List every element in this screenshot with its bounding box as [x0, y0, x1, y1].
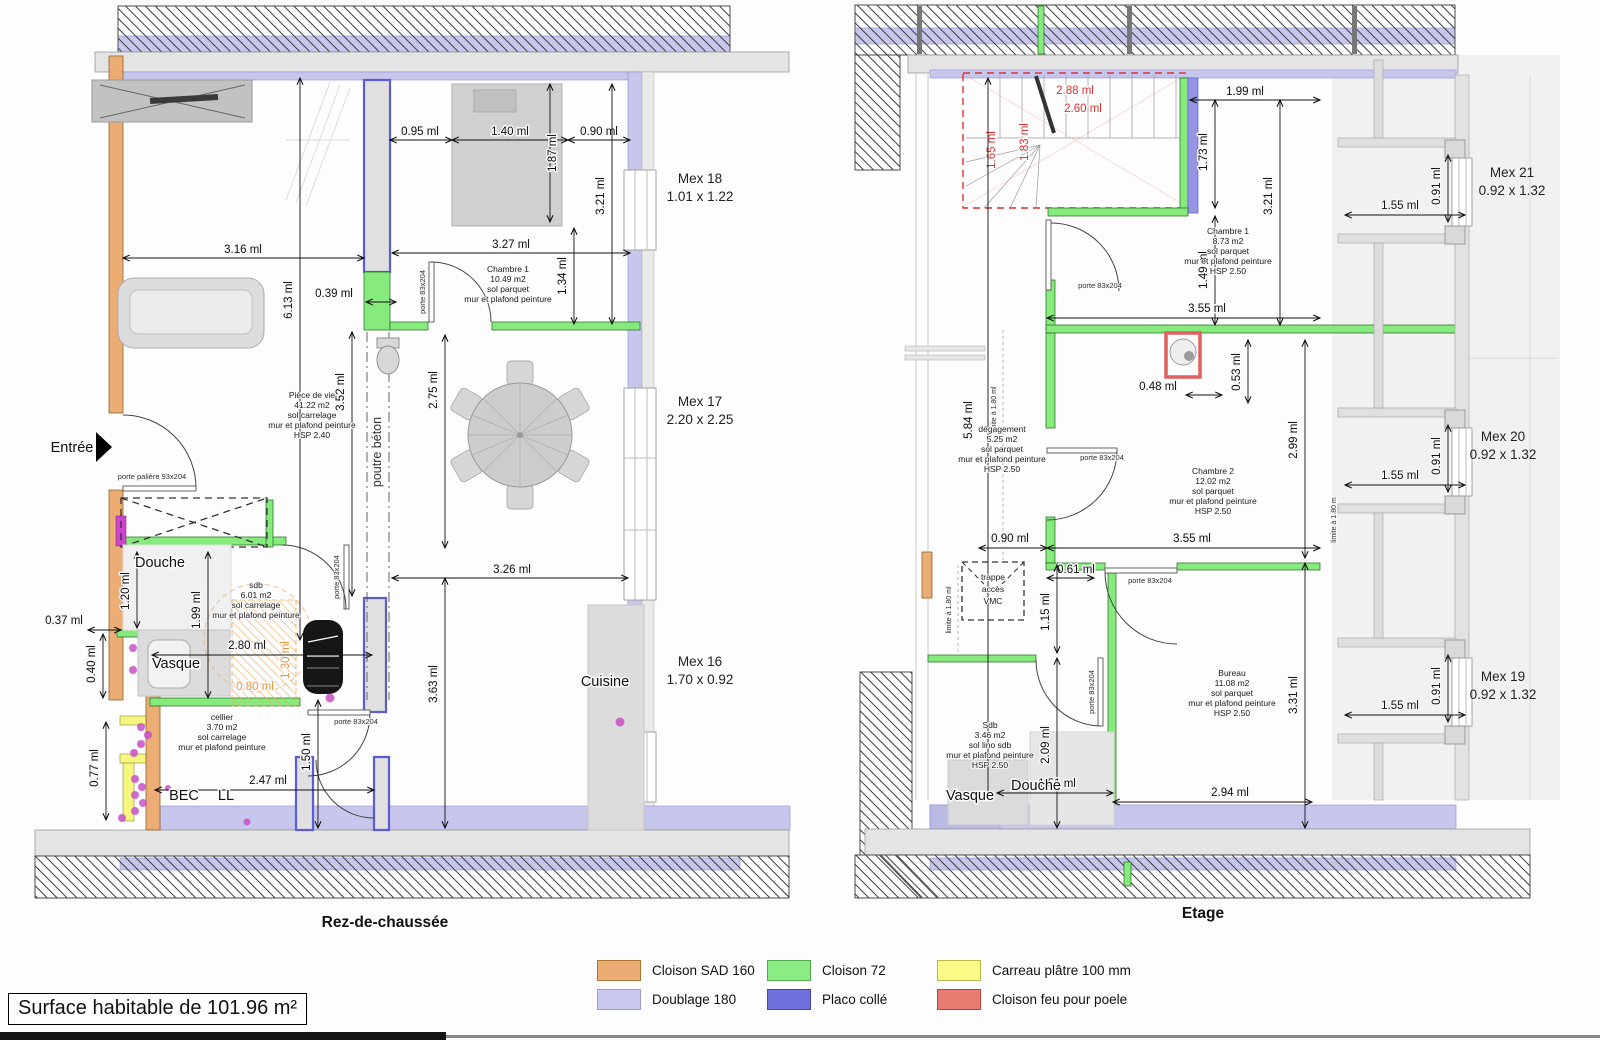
dim-label: 3.55 ml [1173, 533, 1211, 545]
room-label: HSP 2.50 [1195, 506, 1232, 516]
ground-floor-title: Rez-de-chaussée [185, 914, 585, 932]
room-label: sol carrelage [198, 732, 247, 742]
dim-label: 5.84 ml [963, 401, 975, 439]
room-cellier: cellier 3.70 m2 sol carrelage mur et pla… [178, 712, 266, 752]
porte-label: porte 83x204 [1087, 670, 1096, 714]
window-size: 0.92 x 1.32 [1479, 183, 1546, 198]
room-label: sdb [249, 580, 263, 590]
room-chambre2: Chambre 2 12.02 m2 sol parquet mur et pl… [1169, 466, 1257, 516]
mex16-label: Mex 16 1.70 x 0.92 [667, 654, 734, 687]
legend-item: Cloison feu pour poele [937, 989, 1127, 1010]
window-name: Mex 17 [678, 394, 722, 409]
dim-label: 2.09 ml [1040, 726, 1052, 764]
dim-label: 2.99 ml [1288, 421, 1300, 459]
ll-label: LL [218, 788, 234, 804]
room-label: 6.01 m2 [241, 590, 272, 600]
dim-label: 1.73 ml [1198, 133, 1210, 171]
room-label: cellier [211, 712, 233, 722]
bottom-gray-bar [446, 1035, 1600, 1038]
room-label: HSP 2.50 [1210, 266, 1247, 276]
dim-label: 2.47 ml [249, 775, 287, 787]
ghost-stairs [286, 82, 350, 206]
window-name: Mex 21 [1490, 165, 1534, 180]
dim-label: 3.63 ml [428, 665, 440, 703]
room-label: Chambre 1 [487, 264, 529, 274]
douche-label: Douche [135, 555, 185, 571]
dim-label: 0.39 ml [315, 288, 353, 300]
upper-floor-plan: 2.88 ml 2.60 ml 1.65 ml 1.83 ml 1.99 ml … [855, 5, 1560, 898]
dim-label: 2.94 ml [1211, 787, 1249, 799]
room-label: 41.22 m2 [294, 400, 330, 410]
room-label: 12.02 m2 [1195, 476, 1231, 486]
bec-label: BEC [169, 788, 199, 804]
dim-label: 1.15 ml [1040, 593, 1052, 631]
room-label: mur et plafond peinture [1169, 496, 1257, 506]
dim-label: 0.91 ml [1431, 167, 1443, 205]
dim-label: 3.21 ml [595, 177, 607, 215]
room-label: mur et plafond peinture [946, 750, 1034, 760]
entree-label: Entrée [51, 440, 94, 456]
room-label: Chambre 1 [1207, 226, 1249, 236]
room-label: sol carrelage [232, 600, 281, 610]
room-label: HSP 2.50 [984, 464, 1021, 474]
limite-label: limite à 1.80 m [1331, 497, 1338, 543]
room-label: dégagement [978, 424, 1026, 434]
vasque-label: Vasque [946, 788, 994, 804]
dim-label: 0.77 ml [89, 749, 101, 787]
room-label: HSP 2.50 [972, 760, 1009, 770]
room-label: mur et plafond peinture [1188, 698, 1276, 708]
kitchen-counter [588, 605, 644, 830]
dim-label: 0.37 ml [45, 615, 83, 627]
dim-label: 0.53 ml [1231, 353, 1243, 391]
dim-label: 2.88 ml [1056, 85, 1094, 97]
room-label: 8.73 m2 [1213, 236, 1244, 246]
room-label: mur et plafond peinture [464, 294, 552, 304]
dim-label: 0.48 ml [1139, 381, 1177, 393]
legend-item: Cloison 72 [767, 960, 886, 981]
legend-label: Cloison 72 [822, 963, 886, 978]
upper-floor-title: Etage [1053, 905, 1353, 923]
dim-label: 1.55 ml [1381, 470, 1419, 482]
dim-label: 3.52 ml [335, 373, 347, 411]
window-mex18 [624, 170, 656, 250]
porte-label: porte 83x204 [1128, 576, 1172, 585]
douche-label: Douche [1011, 778, 1061, 794]
room-bureau: Bureau 11.08 m2 sol parquet mur et plafo… [1188, 668, 1276, 718]
room-label: sol parquet [981, 444, 1024, 454]
legend-label: Cloison feu pour poele [992, 992, 1127, 1007]
window-name: Mex 16 [678, 654, 722, 669]
room-label: mur et plafond peinture [212, 610, 300, 620]
room-label: 3.70 m2 [207, 722, 238, 732]
window-size: 2.20 x 2.25 [667, 412, 734, 427]
window-name: Mex 19 [1481, 669, 1525, 684]
dim-label: 1.34 ml [557, 257, 569, 295]
trappe-label: accès [982, 584, 1004, 594]
room-label: mur et plafond peinture [958, 454, 1046, 464]
dim-label: 1.55 ml [1381, 700, 1419, 712]
dim-label: 1.30 ml [280, 641, 292, 679]
mex17-label: Mex 17 2.20 x 2.25 [667, 394, 734, 427]
dim-label: 3.31 ml [1288, 676, 1300, 714]
window-name: Mex 20 [1481, 429, 1525, 444]
dim-label: 2.75 ml [428, 371, 440, 409]
dim-label: 3.27 ml [492, 239, 530, 251]
legend-swatch-doublage [597, 989, 641, 1010]
legend-label: Doublage 180 [652, 992, 736, 1007]
dim-label: 0.61 ml [1057, 564, 1095, 576]
dim-label: 0.80 ml [236, 681, 274, 693]
room-label: sol lino sdb [969, 740, 1012, 750]
dim-label: 0.40 ml [86, 645, 98, 683]
legend-label: Cloison SAD 160 [652, 963, 755, 978]
room-label: Bureau [1218, 668, 1246, 678]
dim-label: 1.40 ml [491, 126, 529, 138]
dim-label: 3.26 ml [493, 564, 531, 576]
room-label: 5.25 m2 [987, 434, 1018, 444]
room-label: HSP 2.50 [1214, 708, 1251, 718]
window-size: 0.92 x 1.32 [1470, 447, 1537, 462]
window-size: 1.01 x 1.22 [667, 189, 734, 204]
legend-item: Cloison SAD 160 [597, 960, 755, 981]
water-heater [303, 620, 343, 703]
legend-swatch-cloison-feu [937, 989, 981, 1010]
ground-floor-plan: 0.95 ml 1.40 ml 0.90 ml 1.87 ml 3.21 ml … [35, 6, 790, 898]
porte-label: porte 83x204 [334, 717, 378, 726]
room-label: Sdb [982, 720, 997, 730]
room-label: sol parquet [1211, 688, 1254, 698]
dim-label: 1.99 ml [191, 591, 203, 629]
surface-habitable-label: Surface habitable de 101.96 m² [8, 993, 307, 1025]
porte-label: porte 83x204 [1078, 281, 1122, 290]
sofa [118, 278, 264, 348]
floorplan-canvas: 0.95 ml 1.40 ml 0.90 ml 1.87 ml 3.21 ml … [0, 0, 1600, 1040]
trappe-label: VMC [984, 596, 1003, 606]
dim-label: 1.99 ml [1226, 86, 1264, 98]
porte-label: porte 83x204 [418, 270, 427, 314]
room-label: Pièce de vie [289, 390, 336, 400]
legend-swatch-cloison-72 [767, 960, 811, 981]
mex18-label: Mex 18 1.01 x 1.22 [667, 171, 734, 204]
dim-label: 0.91 ml [1431, 667, 1443, 705]
dim-label: 0.90 ml [991, 533, 1029, 545]
cloison-feu-poele [1166, 333, 1200, 377]
tv-unit [92, 80, 252, 122]
room-label: Chambre 2 [1192, 466, 1234, 476]
dim-label: 3.55 ml [1188, 303, 1226, 315]
window-size: 0.92 x 1.32 [1470, 687, 1537, 702]
room-label: 3.46 m2 [975, 730, 1006, 740]
bottom-black-bar [0, 1032, 446, 1040]
limite-label: limite à 1.80 ml [946, 586, 953, 634]
window-size: 1.70 x 0.92 [667, 672, 734, 687]
window-name: Mex 18 [678, 171, 722, 186]
entree-arrow-icon [96, 432, 112, 462]
poutre-label: poutre béton [370, 417, 384, 487]
vasque-label: Vasque [152, 656, 200, 672]
dim-label: 1.55 ml [1381, 200, 1419, 212]
window-mex17 [624, 388, 656, 600]
dim-label: 3.21 ml [1263, 177, 1275, 215]
dim-label: 1.83 ml [1019, 123, 1031, 161]
dim-label: 1.50 ml [301, 733, 313, 771]
room-label: sol parquet [1207, 246, 1250, 256]
room-label: sol parquet [487, 284, 530, 294]
legend-item: Carreau plâtre 100 mm [937, 960, 1131, 981]
dim-label: 6.13 ml [283, 281, 295, 319]
dim-label: 2.60 ml [1064, 103, 1102, 115]
dining-table [449, 361, 590, 509]
porte-label: porte 83x204 [1080, 453, 1124, 462]
porte-label: porte 83x204 [332, 555, 341, 599]
dim-label: 1.87 ml [547, 134, 559, 172]
room-label: mur et plafond peinture [178, 742, 266, 752]
legend-item: Placo collé [767, 989, 887, 1010]
legend-swatch-carreau-platre [937, 960, 981, 981]
legend-item: Doublage 180 [597, 989, 736, 1010]
dim-label: 3.16 ml [224, 244, 262, 256]
wc [377, 338, 399, 374]
room-label: sol parquet [1192, 486, 1235, 496]
room-label: HSP 2.40 [294, 430, 331, 440]
bed [452, 84, 562, 226]
legend-label: Carreau plâtre 100 mm [992, 963, 1131, 978]
dim-label: 0.95 ml [401, 126, 439, 138]
legend-label: Placo collé [822, 992, 887, 1007]
porte-label: porte palière 93x204 [118, 472, 186, 481]
room-label: sol carrelage [288, 410, 337, 420]
dim-label: 1.20 ml [120, 572, 132, 610]
room-label: mur et plafond peinture [268, 420, 356, 430]
room-label: 11.08 m2 [1215, 678, 1250, 688]
room-label: mur et plafond peinture [1184, 256, 1272, 266]
legend-swatch-cloison-sad [597, 960, 641, 981]
floorplan-sheet: 0.95 ml 1.40 ml 0.90 ml 1.87 ml 3.21 ml … [0, 0, 1600, 1040]
legend-swatch-placo-colle [767, 989, 811, 1010]
trappe-label: trappe [981, 572, 1005, 582]
dim-label: 2.80 ml [228, 640, 266, 652]
cuisine-label: Cuisine [581, 674, 629, 690]
dim-label: 0.91 ml [1431, 437, 1443, 475]
room-label: 10.49 m2 [490, 274, 526, 284]
